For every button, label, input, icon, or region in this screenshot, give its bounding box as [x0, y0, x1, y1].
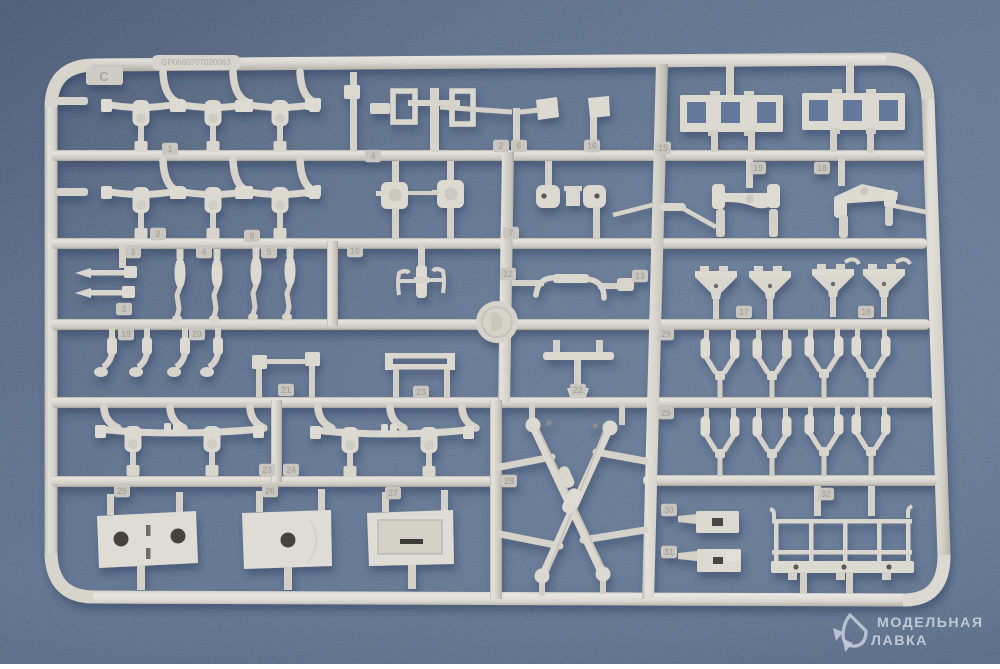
svg-text:26: 26 [265, 486, 275, 496]
svg-text:28: 28 [504, 476, 514, 486]
svg-text:GP0660707020063: GP0660707020063 [161, 58, 231, 67]
svg-text:29: 29 [661, 329, 671, 339]
svg-text:30: 30 [664, 505, 674, 515]
svg-text:23: 23 [262, 465, 272, 475]
svg-text:29: 29 [661, 408, 671, 418]
svg-text:4: 4 [371, 151, 376, 161]
svg-text:21: 21 [281, 385, 291, 395]
svg-text:23: 23 [416, 387, 426, 397]
svg-text:25: 25 [117, 486, 127, 496]
svg-text:1: 1 [168, 144, 173, 154]
svg-text:16: 16 [587, 141, 597, 151]
svg-text:3: 3 [131, 247, 136, 257]
svg-text:9: 9 [250, 231, 255, 241]
svg-text:4: 4 [202, 247, 207, 257]
svg-text:19: 19 [753, 163, 763, 173]
svg-text:19: 19 [121, 329, 131, 339]
svg-text:МОДЕЛЬНАЯ: МОДЕЛЬНАЯ [877, 615, 984, 631]
svg-text:32: 32 [821, 489, 831, 499]
svg-text:7: 7 [509, 228, 514, 238]
svg-text:12: 12 [503, 269, 513, 279]
svg-text:20: 20 [192, 329, 202, 339]
svg-text:10: 10 [350, 246, 360, 256]
svg-text:ЛАВКА: ЛАВКА [871, 633, 928, 649]
svg-text:2: 2 [499, 141, 504, 151]
svg-text:17: 17 [739, 307, 749, 317]
svg-text:31: 31 [664, 547, 674, 557]
svg-text:6: 6 [517, 141, 522, 151]
svg-text:24: 24 [286, 465, 296, 475]
svg-text:2: 2 [156, 229, 161, 239]
svg-text:5: 5 [267, 247, 272, 257]
svg-text:13: 13 [635, 271, 645, 281]
svg-text:15: 15 [658, 143, 668, 153]
svg-text:22: 22 [573, 385, 583, 395]
svg-text:3: 3 [122, 304, 127, 314]
svg-text:18: 18 [861, 307, 871, 317]
svg-text:C: C [99, 69, 109, 84]
svg-text:16: 16 [817, 163, 827, 173]
svg-text:27: 27 [388, 488, 398, 498]
